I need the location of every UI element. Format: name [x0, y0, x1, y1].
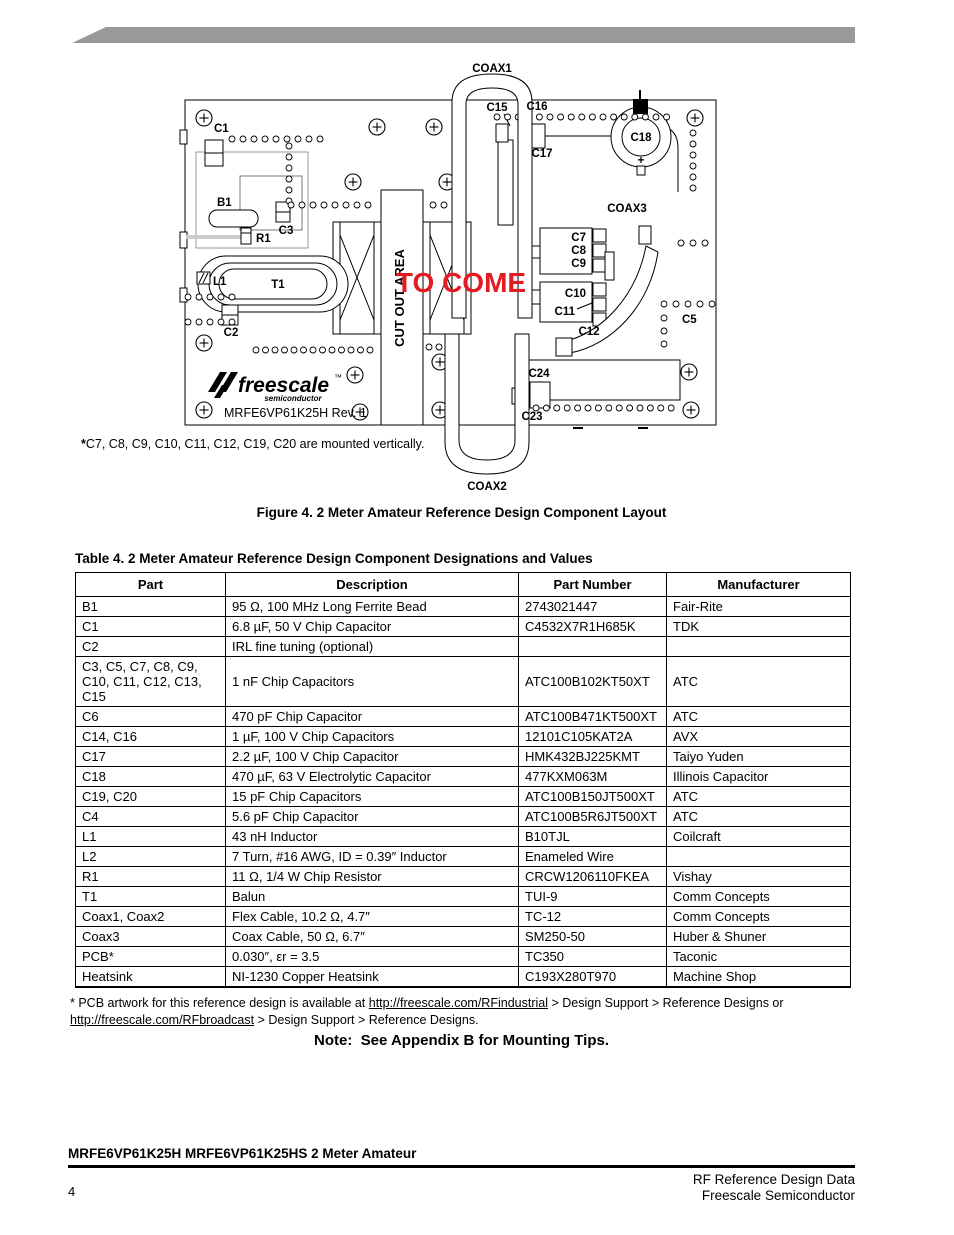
- c24-label: C24: [528, 368, 550, 380]
- cell-description: Coax Cable, 50 Ω, 6.7″: [226, 927, 519, 947]
- cell-part: C1: [76, 617, 226, 637]
- table-row: T1BalunTUI-9Comm Concepts: [76, 887, 851, 907]
- cell-part: Coax3: [76, 927, 226, 947]
- cell-description: 1 nF Chip Capacitors: [226, 657, 519, 707]
- cell-part: R1: [76, 867, 226, 887]
- rf-broadcast-link[interactable]: http://freescale.com/RFbroadcast: [70, 1013, 254, 1027]
- table-row: Coax1, Coax2Flex Cable, 10.2 Ω, 4.7″TC-1…: [76, 907, 851, 927]
- cell-part-number: B10TJL: [519, 827, 667, 847]
- cell-part: B1: [76, 597, 226, 617]
- header-description: Description: [226, 573, 519, 597]
- table-row: HeatsinkNI-1230 Copper HeatsinkC193X280T…: [76, 967, 851, 988]
- cell-part: L2: [76, 847, 226, 867]
- pcb-artwork-footnote: * PCB artwork for this reference design …: [70, 995, 862, 1029]
- cell-part-number: Enameled Wire: [519, 847, 667, 867]
- cell-part: C4: [76, 807, 226, 827]
- freescale-logo-tm: ™: [334, 373, 342, 382]
- cell-part: C17: [76, 747, 226, 767]
- component-table: Part Description Part Number Manufacture…: [75, 572, 851, 988]
- c18-label: C18: [630, 132, 652, 144]
- table-row: C45.6 pF Chip CapacitorATC100B5R6JT500XT…: [76, 807, 851, 827]
- c23-label: C23: [521, 411, 542, 423]
- table-row: L143 nH InductorB10TJLCoilcraft: [76, 827, 851, 847]
- b1-label: B1: [217, 197, 232, 209]
- c18-polarity-mark: +: [638, 155, 645, 167]
- footer-divider: [68, 1165, 855, 1168]
- table-row: C3, C5, C7, C8, C9, C10, C11, C12, C13, …: [76, 657, 851, 707]
- cell-description: 5.6 pF Chip Capacitor: [226, 807, 519, 827]
- table-row: C2IRL fine tuning (optional): [76, 637, 851, 657]
- figure-footnote-text: C7, C8, C9, C10, C11, C12, C19, C20 are …: [86, 437, 425, 451]
- c16-label: C16: [526, 101, 547, 113]
- c1-label: C1: [214, 123, 229, 135]
- freescale-logo-subtext: semiconductor: [264, 394, 322, 403]
- cell-description: Balun: [226, 887, 519, 907]
- cell-manufacturer: Huber & Shuner: [667, 927, 851, 947]
- coax2-label: COAX2: [467, 481, 507, 493]
- c7-label: C7: [571, 232, 586, 244]
- t1-label: T1: [271, 279, 285, 291]
- cell-manufacturer: Vishay: [667, 867, 851, 887]
- cell-part-number: TC-12: [519, 907, 667, 927]
- footer-company: Freescale Semiconductor: [693, 1188, 855, 1204]
- cell-description: 15 pF Chip Capacitors: [226, 787, 519, 807]
- cell-part-number: [519, 637, 667, 657]
- table-row: C18470 µF, 63 V Electrolytic Capacitor47…: [76, 767, 851, 787]
- cell-part: Coax1, Coax2: [76, 907, 226, 927]
- cell-manufacturer: Fair-Rite: [667, 597, 851, 617]
- cell-manufacturer: Comm Concepts: [667, 887, 851, 907]
- cell-manufacturer: AVX: [667, 727, 851, 747]
- footnote-text-3: > Design Support > Reference Designs.: [254, 1013, 478, 1027]
- table-row: C19, C2015 pF Chip CapacitorsATC100B150J…: [76, 787, 851, 807]
- page-number: 4: [68, 1184, 75, 1199]
- cell-part-number: SM250-50: [519, 927, 667, 947]
- cell-part: C14, C16: [76, 727, 226, 747]
- cell-part: C2: [76, 637, 226, 657]
- cell-manufacturer: Coilcraft: [667, 827, 851, 847]
- cell-part-number: ATC100B102KT50XT: [519, 657, 667, 707]
- cell-description: 6.8 µF, 50 V Chip Capacitor: [226, 617, 519, 637]
- l1-label: L1: [213, 276, 227, 288]
- cell-description: 470 µF, 63 V Electrolytic Capacitor: [226, 767, 519, 787]
- cell-part-number: C4532X7R1H685K: [519, 617, 667, 637]
- cell-manufacturer: Machine Shop: [667, 967, 851, 988]
- board-rev-label: MRFE6VP61K25H Rev. 1: [224, 406, 367, 420]
- table-row: C14, C161 µF, 100 V Chip Capacitors12101…: [76, 727, 851, 747]
- cell-manufacturer: [667, 847, 851, 867]
- cell-manufacturer: Taiyo Yuden: [667, 747, 851, 767]
- table-row: Coax3Coax Cable, 50 Ω, 6.7″SM250-50Huber…: [76, 927, 851, 947]
- cell-part-number: CRCW1206110FKEA: [519, 867, 667, 887]
- c15-label: C15: [486, 102, 508, 114]
- cell-part-number: 12101C105KAT2A: [519, 727, 667, 747]
- cell-manufacturer: ATC: [667, 807, 851, 827]
- c3-label: C3: [279, 225, 294, 237]
- footer-product-line: MRFE6VP61K25H MRFE6VP61K25HS 2 Meter Ama…: [68, 1146, 416, 1161]
- cell-manufacturer: [667, 637, 851, 657]
- cell-description: 2.2 µF, 100 V Chip Capacitor: [226, 747, 519, 767]
- cell-part: C3, C5, C7, C8, C9, C10, C11, C12, C13, …: [76, 657, 226, 707]
- c9-label: C9: [571, 258, 586, 270]
- cell-part: Heatsink: [76, 967, 226, 988]
- cell-description: NI-1230 Copper Heatsink: [226, 967, 519, 988]
- c2-label: C2: [224, 327, 239, 339]
- cell-description: 7 Turn, #16 AWG, ID = 0.39″ Inductor: [226, 847, 519, 867]
- footer-right-block: RF Reference Design Data Freescale Semic…: [693, 1172, 855, 1203]
- table-row: PCB*0.030″, εr = 3.5TC350Taconic: [76, 947, 851, 967]
- r1-label: R1: [256, 233, 271, 245]
- mounting-note: Note: See Appendix B for Mounting Tips.: [68, 1032, 855, 1049]
- cell-manufacturer: Illinois Capacitor: [667, 767, 851, 787]
- cell-part-number: HMK432BJ225KMT: [519, 747, 667, 767]
- table-row: C16.8 µF, 50 V Chip CapacitorC4532X7R1H6…: [76, 617, 851, 637]
- cell-description: 95 Ω, 100 MHz Long Ferrite Bead: [226, 597, 519, 617]
- cell-manufacturer: ATC: [667, 787, 851, 807]
- figure-caption: Figure 4. 2 Meter Amateur Reference Desi…: [68, 505, 855, 520]
- header-manufacturer: Manufacturer: [667, 573, 851, 597]
- cell-manufacturer: Taconic: [667, 947, 851, 967]
- header-part-number: Part Number: [519, 573, 667, 597]
- cell-part-number: ATC100B471KT500XT: [519, 707, 667, 727]
- cell-description: 0.030″, εr = 3.5: [226, 947, 519, 967]
- cell-description: 11 Ω, 1/4 W Chip Resistor: [226, 867, 519, 887]
- footer-doc-title: RF Reference Design Data: [693, 1172, 855, 1188]
- cell-part-number: C193X280T970: [519, 967, 667, 988]
- table-row: C172.2 µF, 100 V Chip CapacitorHMK432BJ2…: [76, 747, 851, 767]
- cell-part-number: 477KXM063M: [519, 767, 667, 787]
- coax3-label: COAX3: [607, 203, 647, 215]
- header-part: Part: [76, 573, 226, 597]
- table-row: R111 Ω, 1/4 W Chip ResistorCRCW1206110FK…: [76, 867, 851, 887]
- cell-part: L1: [76, 827, 226, 847]
- rf-industrial-link[interactable]: http://freescale.com/RFindustrial: [369, 996, 548, 1010]
- cell-part-number: ATC100B5R6JT500XT: [519, 807, 667, 827]
- component-table-body: B195 Ω, 100 MHz Long Ferrite Bead2743021…: [76, 597, 851, 988]
- cell-part-number: TUI-9: [519, 887, 667, 907]
- cell-part: PCB*: [76, 947, 226, 967]
- cell-part: C18: [76, 767, 226, 787]
- footnote-text-2: > Design Support > Reference Designs or: [548, 996, 784, 1010]
- table-row: C6470 pF Chip CapacitorATC100B471KT500XT…: [76, 707, 851, 727]
- table-row: L27 Turn, #16 AWG, ID = 0.39″ InductorEn…: [76, 847, 851, 867]
- c11-label: C11: [555, 306, 576, 318]
- c17-label: C17: [531, 148, 552, 160]
- cell-description: Flex Cable, 10.2 Ω, 4.7″: [226, 907, 519, 927]
- c5-label: C5: [682, 314, 697, 326]
- to-come-placeholder: TO COME: [396, 267, 526, 298]
- footnote-text-1: * PCB artwork for this reference design …: [70, 996, 369, 1010]
- cell-part: C6: [76, 707, 226, 727]
- c10-label: C10: [565, 288, 586, 300]
- coax1-label: COAX1: [472, 63, 512, 75]
- cell-manufacturer: TDK: [667, 617, 851, 637]
- cell-part-number: TC350: [519, 947, 667, 967]
- cell-manufacturer: Comm Concepts: [667, 907, 851, 927]
- c12-label: C12: [578, 326, 599, 338]
- cell-description: 470 pF Chip Capacitor: [226, 707, 519, 727]
- datasheet-page: COAX1 C15 C16 C17 C18 + COAX3 C7 C8 C9 C…: [0, 0, 954, 1235]
- cell-description: 1 µF, 100 V Chip Capacitors: [226, 727, 519, 747]
- cell-manufacturer: ATC: [667, 657, 851, 707]
- cell-part-number: ATC100B150JT500XT: [519, 787, 667, 807]
- cell-manufacturer: ATC: [667, 707, 851, 727]
- table-row: B195 Ω, 100 MHz Long Ferrite Bead2743021…: [76, 597, 851, 617]
- cell-part-number: 2743021447: [519, 597, 667, 617]
- table-title: Table 4. 2 Meter Amateur Reference Desig…: [75, 551, 593, 566]
- figure-footnote: *C7, C8, C9, C10, C11, C12, C19, C20 are…: [81, 437, 424, 451]
- cell-part: C19, C20: [76, 787, 226, 807]
- cell-description: 43 nH Inductor: [226, 827, 519, 847]
- cell-part: T1: [76, 887, 226, 907]
- table-header-row: Part Description Part Number Manufacture…: [76, 573, 851, 597]
- c8-label: C8: [571, 245, 586, 257]
- cell-description: IRL fine tuning (optional): [226, 637, 519, 657]
